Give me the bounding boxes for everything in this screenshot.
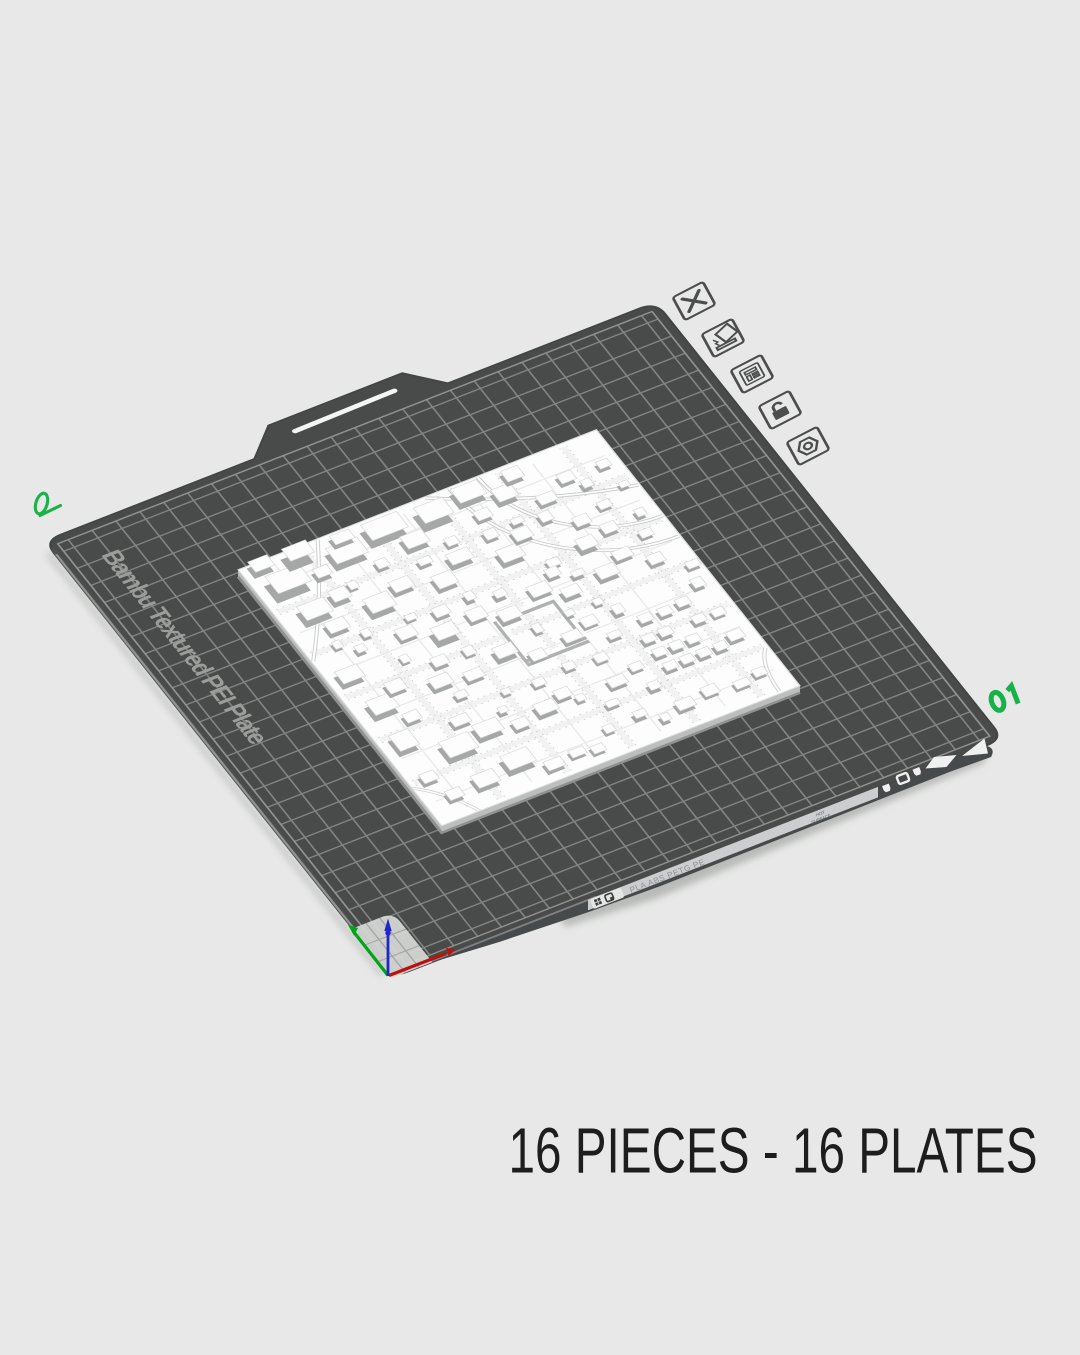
svg-text:16 PIECES - 16 PLATES: 16 PIECES - 16 PLATES xyxy=(508,1115,1037,1186)
